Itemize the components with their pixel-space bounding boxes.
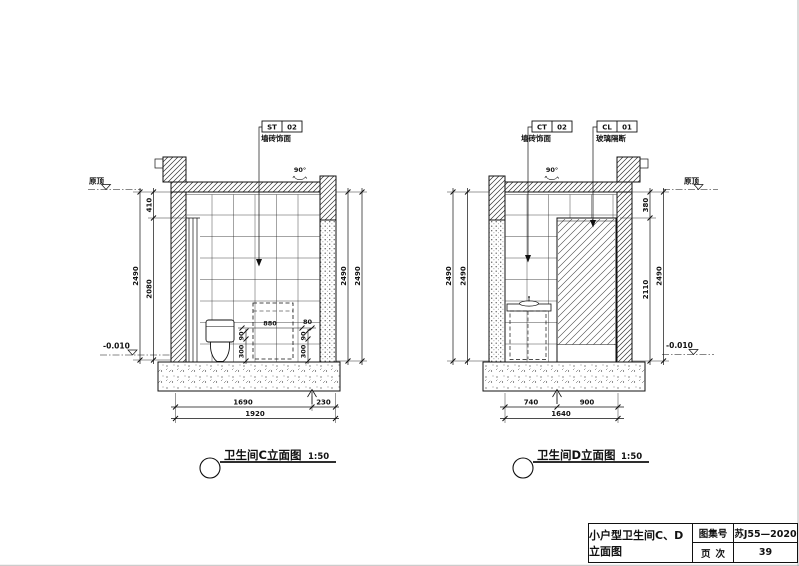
washbasin [507,296,551,359]
elevation-c-dims-bottom: 1690 230 1920 [171,390,339,424]
toilet [206,320,234,362]
right-wall [617,192,632,362]
leader-down-arrow-icon [525,255,531,263]
section-arrow-icon [308,390,317,405]
elevation-c-drawing: ST 02 墙砖饰面 90° 410 2080 2490 原顶 -0.010 [88,121,367,478]
atlas-number-label: 图集号 [692,524,733,543]
dim-90-right: 90 [300,331,308,341]
dim-2490-left-inner: 2490 [460,266,468,286]
elevation-d-dims-bottom: 740 900 1640 [500,390,624,424]
elevation-c-levels: 原顶 -0.010 [88,177,172,356]
glass-partition [557,218,616,362]
angle-note-c: 90° [293,166,307,180]
page-number-value: 39 [733,543,797,562]
elevation-c-dims-inner: 880 80 90 300 90 300 [238,318,317,364]
dim-1920: 1920 [245,410,265,418]
floor-slab [158,362,340,391]
dim-90-left: 90 [238,331,246,341]
drawing-scale-d: 1:50 [621,452,642,462]
cistern-dashed-box [253,303,293,359]
tag-desc: 墙砖饰面 [261,133,291,143]
elevation-d-levels: 原顶 -0.010 [662,177,718,355]
level-top-label: 原顶 [89,177,104,186]
dim-2490-right-inner: 2490 [340,266,348,286]
wall-tile-tag-c: ST 02 墙砖饰面 [256,121,302,267]
left-wall [171,192,186,362]
drawing-title-c: 卫生间C立面图 [224,448,301,462]
dim-300-left: 300 [238,344,246,358]
drawing-scale-c: 1:50 [308,452,329,462]
tag-number: 02 [287,124,297,132]
tag-number: 02 [557,124,567,132]
elevation-c-title: 卫生间C立面图 1:50 [200,448,336,478]
tag-desc: 墙砖饰面 [521,133,551,143]
elevation-c-dims-right: 2490 2490 [336,188,367,365]
left-wall-top [489,176,505,220]
dim-1640: 1640 [551,410,571,418]
angle-note-d: 90° [545,166,559,180]
level-top-label: 原顶 [684,177,699,186]
angle-arc-icon [545,176,559,180]
level-symbol-icon [689,350,698,355]
dim-300-right: 300 [300,344,308,358]
dim-2490-right: 2490 [656,266,664,286]
dim-380: 380 [642,198,650,213]
title-block: 小户型卫生间C、D立面图 图集号 苏J55—2020 页次 39 [588,523,798,563]
dim-2080: 2080 [146,279,154,299]
angle-arc-icon [293,176,307,180]
dim-900: 900 [580,399,595,407]
drawing-sheet: ST 02 墙砖饰面 90° 410 2080 2490 原顶 -0.010 [0,0,799,566]
dim-230: 230 [316,399,331,407]
architectural-drawing-canvas: ST 02 墙砖饰面 90° 410 2080 2490 原顶 -0.010 [0,0,799,566]
door-edge [186,218,200,362]
sheet-border [0,0,799,566]
section-arrow-icon [553,390,562,405]
right-wall-top [320,176,336,220]
detail-circle-icon [513,458,533,478]
leader-down-arrow-icon [256,259,262,267]
elevation-d-drawing: CT 02 墙砖饰面 CL 01 玻璃隔断 90° 2490 2490 [445,121,718,478]
elevation-d-dims-left: 2490 2490 [445,188,490,365]
right-wall-bottom [320,220,336,362]
level-bottom-label: -0.010 [103,342,130,351]
atlas-number-value: 苏J55—2020 [733,524,797,543]
tag-number: 01 [622,124,632,132]
ceiling-slab [171,182,320,192]
dim-1690: 1690 [233,399,253,407]
ceiling-slab [505,182,632,192]
dim-2490-left: 2490 [132,266,140,286]
tag-code: ST [267,124,277,132]
svg-text:90°: 90° [546,166,558,174]
dim-2110: 2110 [642,280,650,300]
level-bottom-label: -0.010 [666,341,693,350]
dim-880: 880 [263,320,277,328]
drawing-title-d: 卫生间D立面图 [537,448,616,462]
title-block-drawing-title: 小户型卫生间C、D立面图 [589,524,692,562]
svg-text:90°: 90° [294,166,306,174]
dim-2490-left-outer: 2490 [445,266,453,286]
page-number-label: 页次 [692,543,733,562]
dim-740: 740 [524,399,539,407]
dim-410: 410 [146,198,154,213]
elevation-d-title: 卫生间D立面图 1:50 [513,448,649,478]
detail-circle-icon [200,458,220,478]
tag-code: CT [537,124,547,132]
elevation-c-structure [155,157,340,391]
floor-slab [483,362,645,391]
dim-2490-right-outer: 2490 [354,266,362,286]
tag-code: CL [602,124,612,132]
level-symbol-icon [128,350,137,355]
tag-desc: 玻璃隔断 [596,133,626,143]
dim-80: 80 [303,318,313,326]
left-wall-bottom [489,220,505,362]
